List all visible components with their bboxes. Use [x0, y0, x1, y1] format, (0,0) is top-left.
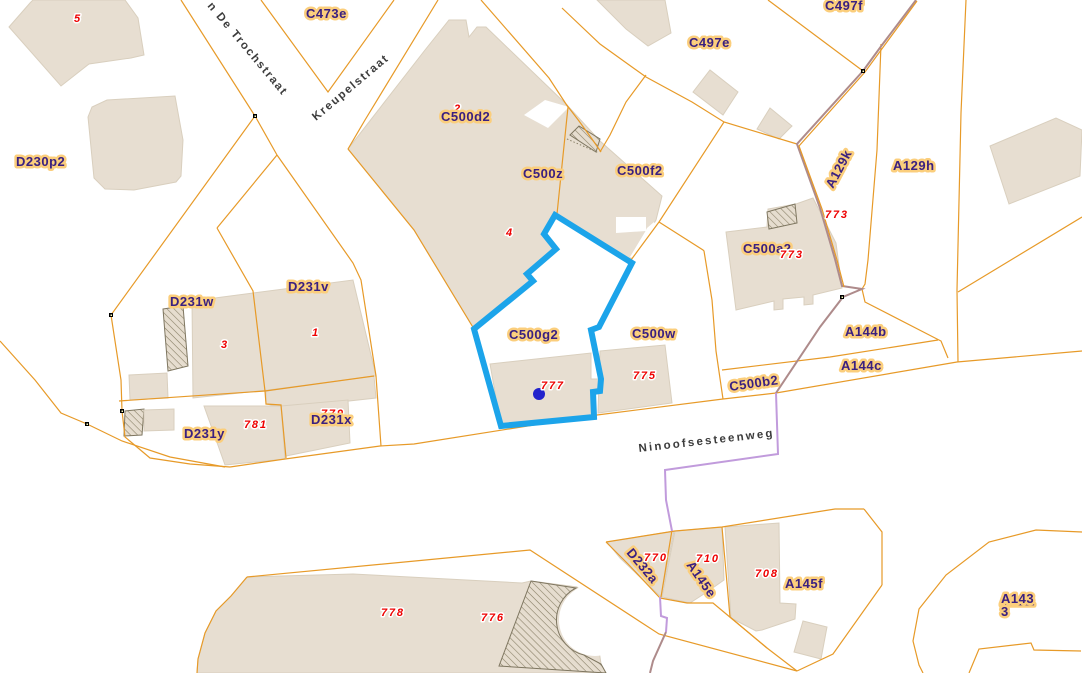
svg-text:770: 770	[644, 552, 668, 564]
svg-text:A144c: A144c	[841, 358, 882, 373]
svg-text:C500g2: C500g2	[509, 327, 558, 342]
svg-text:775: 775	[633, 370, 657, 382]
svg-text:A144b: A144b	[845, 324, 887, 339]
svg-text:708: 708	[755, 568, 779, 580]
svg-text:A145f: A145f	[785, 576, 823, 591]
svg-text:D231y: D231y	[184, 426, 225, 441]
svg-text:3: 3	[1001, 604, 1009, 619]
svg-text:5: 5	[74, 13, 82, 25]
svg-text:C497f: C497f	[825, 0, 863, 13]
svg-text:773: 773	[780, 249, 804, 261]
svg-text:C500d2: C500d2	[441, 109, 490, 124]
svg-text:776: 776	[481, 612, 505, 624]
svg-text:C497e: C497e	[689, 35, 730, 50]
svg-text:710: 710	[696, 553, 720, 565]
svg-text:A129h: A129h	[893, 158, 935, 173]
svg-text:C473e: C473e	[306, 6, 347, 21]
svg-text:D231w: D231w	[170, 294, 214, 309]
svg-text:C500f2: C500f2	[617, 163, 663, 178]
svg-text:773: 773	[825, 209, 849, 221]
svg-text:D231x: D231x	[311, 412, 352, 427]
svg-text:3: 3	[221, 339, 229, 351]
svg-text:781: 781	[244, 419, 268, 431]
svg-text:4: 4	[505, 227, 514, 239]
svg-text:778: 778	[381, 607, 405, 619]
svg-text:C500z: C500z	[523, 166, 563, 181]
svg-text:D230p2: D230p2	[16, 154, 65, 169]
svg-text:777: 777	[541, 380, 565, 392]
svg-text:C500w: C500w	[632, 326, 676, 341]
svg-text:1: 1	[312, 327, 320, 339]
svg-text:D231v: D231v	[288, 279, 329, 294]
